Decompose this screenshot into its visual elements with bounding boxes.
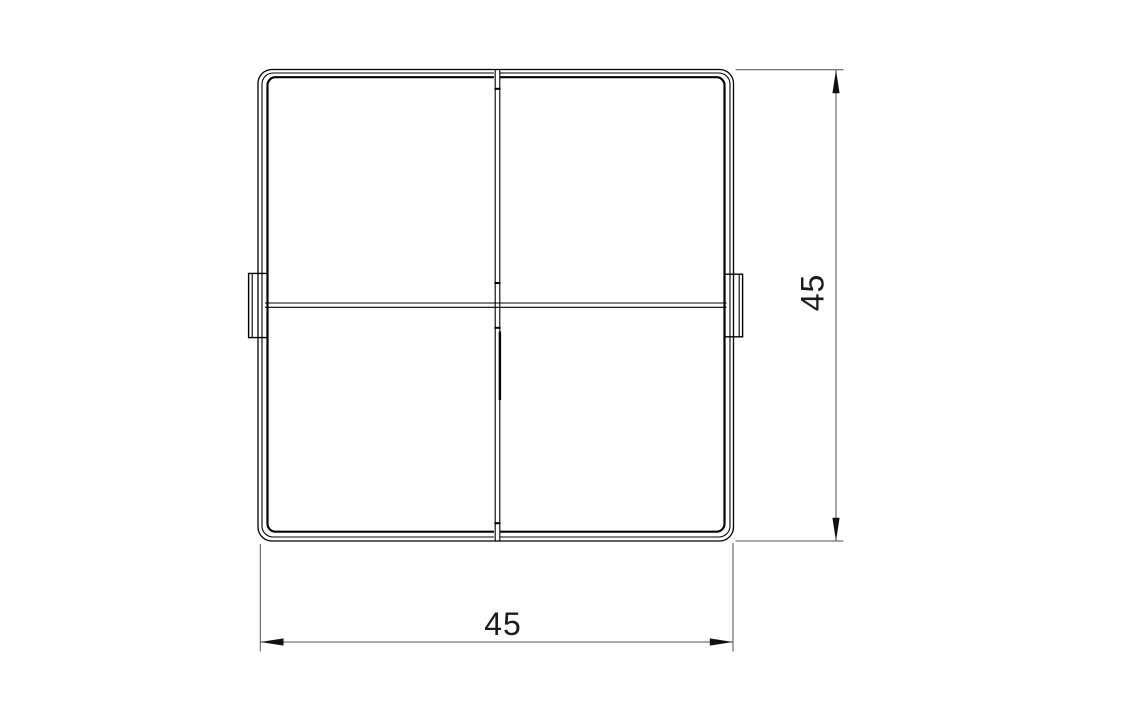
vertical-divider [494, 70, 500, 541]
width-arrowhead-left [260, 638, 283, 645]
part-geometry [249, 70, 743, 542]
frame-inner-face-contour [268, 77, 725, 532]
width-arrowhead-right [710, 638, 733, 645]
height-arrowhead-top [832, 70, 839, 93]
cad-drawing-page: 45 45 [0, 0, 1141, 720]
height-dimension-text: 45 [795, 274, 831, 312]
width-dimension: 45 [260, 543, 733, 652]
frame-middle-contour [262, 73, 730, 537]
height-arrowhead-bottom [832, 518, 839, 541]
width-dimension-text: 45 [484, 606, 522, 642]
technical-drawing-canvas: 45 45 [0, 0, 1141, 720]
height-dimension: 45 [736, 70, 844, 541]
